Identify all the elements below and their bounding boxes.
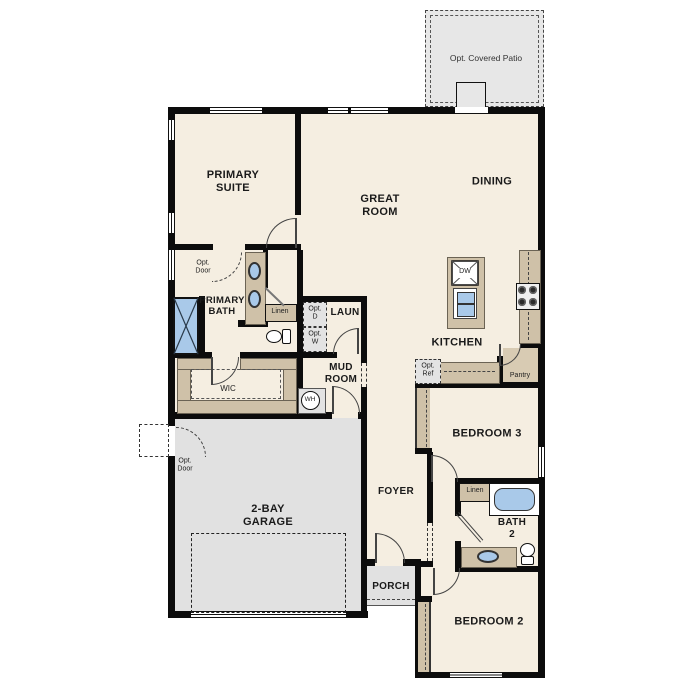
island-sink-basin bbox=[457, 304, 475, 317]
toilet-tank bbox=[282, 329, 291, 344]
upper-cabinet-dash bbox=[444, 371, 495, 372]
burner-icon bbox=[518, 298, 526, 306]
bedroom2-closet bbox=[418, 602, 429, 672]
linen-label: Linen bbox=[466, 487, 483, 495]
room-label-great-room: GREAT ROOM bbox=[350, 193, 410, 219]
opt-dryer-label: Opt. D bbox=[305, 306, 325, 323]
floor-plan-canvas: DW bbox=[0, 0, 687, 687]
toilet-bowl bbox=[266, 330, 282, 343]
garage-door-dash bbox=[191, 533, 346, 613]
room-label-bath2: BATH 2 bbox=[496, 517, 528, 541]
room-label-foyer: FOYER bbox=[378, 486, 414, 498]
opt-door-landing bbox=[139, 424, 169, 457]
wall bbox=[421, 561, 433, 567]
opt-washer-label: Opt. W bbox=[305, 331, 325, 348]
island-sink-basin bbox=[457, 292, 475, 304]
door-leaf bbox=[332, 386, 334, 414]
room-label-primary-suite: PRIMARY SUITE bbox=[193, 169, 273, 195]
toilet-bowl bbox=[520, 543, 535, 557]
patio-door-notch bbox=[456, 82, 486, 107]
room-label-dining: DINING bbox=[472, 176, 512, 189]
door-leaf bbox=[433, 568, 435, 595]
wall bbox=[538, 107, 545, 678]
patio-label: Opt. Covered Patio bbox=[450, 53, 522, 63]
front-door-leaf bbox=[375, 533, 377, 563]
sink bbox=[248, 262, 261, 280]
door-leaf bbox=[295, 218, 297, 248]
door-leaf bbox=[431, 455, 433, 482]
wall bbox=[403, 559, 421, 566]
burner-icon bbox=[529, 286, 537, 294]
room-label-bedroom2: BEDROOM 2 bbox=[454, 616, 523, 629]
window bbox=[168, 250, 175, 280]
opt-door-label: Opt. Door bbox=[192, 260, 214, 277]
door-leaf bbox=[499, 344, 501, 366]
room-label-bedroom3: BEDROOM 3 bbox=[452, 428, 521, 441]
wall bbox=[429, 602, 431, 672]
room-label-mud-room: MUD ROOM bbox=[318, 362, 364, 386]
wall bbox=[168, 107, 175, 618]
burner-icon bbox=[518, 286, 526, 294]
room-label-porch: PORCH bbox=[372, 581, 410, 593]
cased-opening bbox=[427, 523, 433, 561]
window bbox=[210, 107, 262, 114]
door-leaf bbox=[211, 357, 213, 385]
toilet-tank bbox=[521, 556, 534, 565]
dishwasher-label: DW bbox=[459, 268, 471, 276]
room-label-laundry: LAUN bbox=[331, 307, 360, 319]
patio-door-opening bbox=[455, 107, 488, 114]
room-label-kitchen: KITCHEN bbox=[432, 337, 483, 350]
wall bbox=[361, 559, 375, 566]
opt-ref-label: Opt. Ref bbox=[417, 363, 439, 380]
closet-rod-dash bbox=[425, 604, 426, 670]
wall bbox=[297, 352, 337, 358]
porch-dashed-edge bbox=[367, 599, 415, 600]
opt-door-opening bbox=[168, 426, 175, 456]
pantry-label: Pantry bbox=[510, 372, 530, 380]
water-heater-label: WH bbox=[305, 396, 316, 404]
burner-icon bbox=[529, 298, 537, 306]
window bbox=[328, 107, 348, 114]
window bbox=[450, 672, 502, 678]
wall bbox=[295, 107, 301, 215]
bedroom3-closet bbox=[417, 388, 430, 448]
sink bbox=[477, 550, 499, 563]
window bbox=[351, 107, 388, 114]
opt-door-label: Opt. Door bbox=[174, 458, 196, 475]
kitchen-counter-bottom bbox=[440, 362, 500, 384]
window bbox=[168, 120, 175, 140]
room-label-wic: WIC bbox=[220, 384, 236, 394]
door-leaf bbox=[357, 328, 359, 354]
closet-rod-dash bbox=[426, 390, 427, 447]
room-label-primary-bath: PRIMARY BATH bbox=[191, 295, 253, 317]
room-label-garage: 2-BAY GARAGE bbox=[233, 503, 303, 529]
window bbox=[168, 213, 175, 233]
bathtub-basin bbox=[494, 488, 535, 511]
wic-shelf bbox=[177, 400, 297, 414]
linen-label: Linen bbox=[271, 308, 288, 316]
window bbox=[538, 447, 545, 477]
